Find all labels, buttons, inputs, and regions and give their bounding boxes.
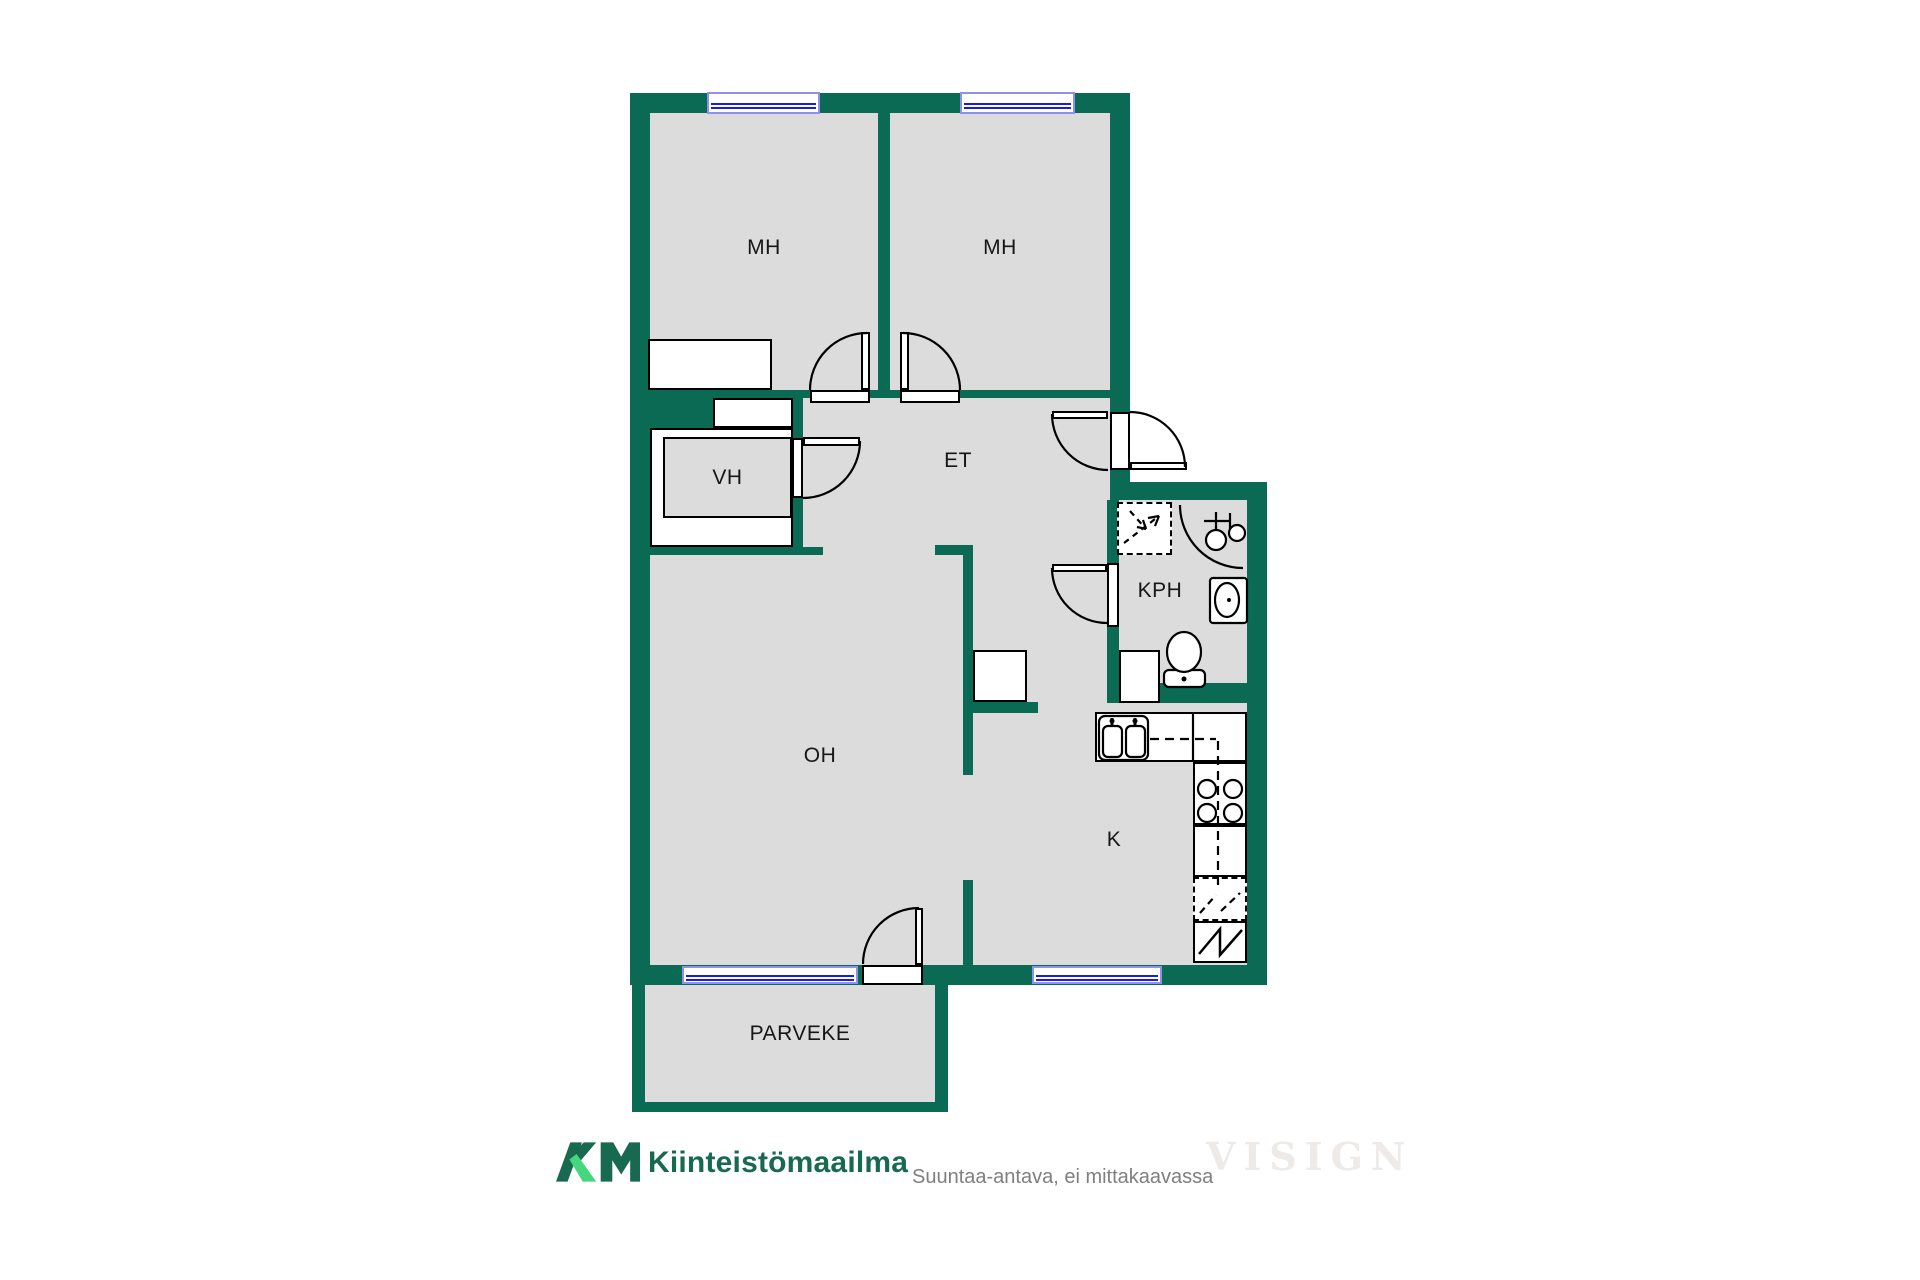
wall: [935, 545, 973, 555]
kitchen-counter: [1095, 712, 1247, 762]
counter-segment: [1193, 825, 1247, 877]
entry-door-opening: [1110, 412, 1130, 470]
wall-bedroom-divider: [878, 113, 890, 390]
room-label-parveke: PARVEKE: [750, 1022, 851, 1046]
km-logo-icon: [556, 1140, 640, 1184]
room-label-mh-right: MH: [983, 236, 1017, 260]
bedroom-left-door-sill: [810, 390, 870, 403]
floorplan-canvas: VH: [0, 0, 1920, 1280]
kitchen-peninsula: [973, 650, 1027, 702]
room-label-et: ET: [944, 449, 972, 473]
wall: [650, 398, 713, 430]
kitchen-window: [1032, 966, 1162, 984]
window-glass-lines: [964, 103, 1071, 109]
room-vh: VH: [663, 437, 792, 518]
wall-oh-divider-lower: [963, 880, 973, 965]
wall-kitchen-stub: [963, 702, 1038, 713]
fridge-reservation-icon: [1193, 877, 1247, 921]
stove: [1193, 762, 1247, 825]
appliance-box: [1193, 921, 1247, 963]
entry-door-inner: [1052, 411, 1108, 419]
entry-door-outer: [1130, 462, 1187, 470]
room-label-k: K: [1107, 828, 1122, 852]
room-label-mh-left: MH: [747, 236, 781, 260]
wall: [650, 390, 810, 398]
door-arc: [1130, 412, 1185, 467]
bathroom-door-opening: [1107, 563, 1119, 627]
closet-door: [803, 437, 860, 446]
bedroom-right-window: [960, 92, 1075, 114]
bedroom-right-door: [900, 332, 909, 390]
wall: [1110, 470, 1130, 482]
washing-machine-slot: [1119, 650, 1160, 703]
livingroom-window: [682, 966, 858, 984]
disclaimer-text: Suuntaa-antava, ei mittakaavassa: [912, 1166, 1213, 1189]
window-glass-lines: [711, 103, 816, 109]
bathroom-door: [1052, 564, 1107, 572]
bedroom-left-window: [707, 92, 820, 114]
closet-door-opening: [792, 438, 803, 498]
logo-text: Kiinteistömaailma: [648, 1146, 908, 1180]
room-label-oh: OH: [804, 744, 837, 768]
balcony-door: [915, 908, 923, 965]
closet-shelf: [713, 398, 793, 428]
bedroom-right-door-sill: [900, 390, 960, 403]
room-label-vh: VH: [712, 466, 742, 490]
wall-oh-divider-upper: [963, 555, 973, 775]
wall: [650, 547, 823, 555]
watermark-text: VISIGN: [1206, 1134, 1414, 1179]
window-glass-lines: [686, 975, 854, 981]
shower-symbol: [1117, 502, 1172, 555]
wall: [870, 390, 900, 398]
wall: [960, 390, 1110, 398]
wardrobe: [648, 339, 772, 390]
bedroom-left-door: [861, 332, 870, 390]
balcony-door-sill: [862, 965, 923, 985]
room-label-kph: KPH: [1138, 579, 1183, 603]
window-glass-lines: [1036, 975, 1158, 981]
